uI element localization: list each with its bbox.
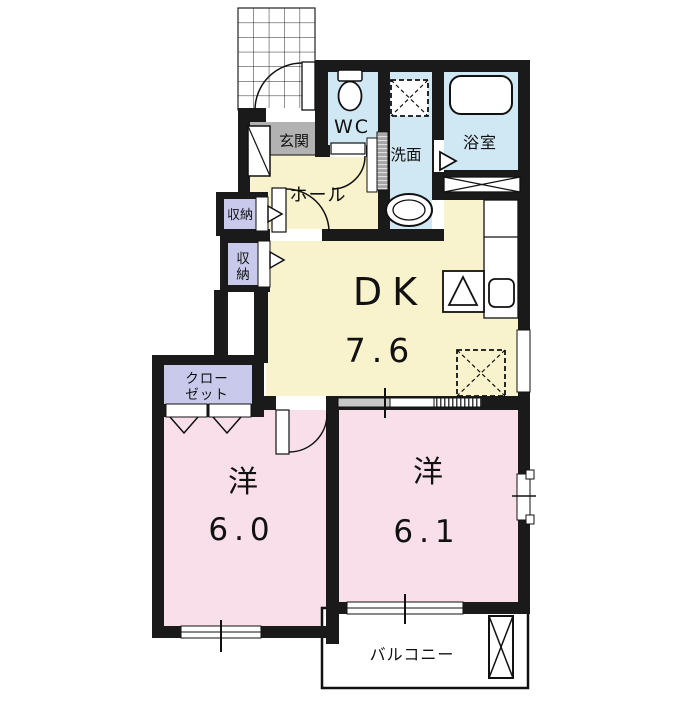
balcony-hatch bbox=[489, 616, 513, 678]
bedroom-left-label: 洋 bbox=[228, 465, 258, 500]
storage-lower-label-1: 収 bbox=[236, 251, 250, 267]
storage-lower-door bbox=[258, 241, 270, 287]
storage-upper-label: 収納 bbox=[227, 208, 253, 223]
wall-dk-left bbox=[254, 284, 268, 363]
toilet-icon bbox=[338, 70, 362, 111]
washroom-sliding-door bbox=[367, 132, 388, 192]
closet-door-2 bbox=[209, 404, 251, 417]
entrance-door-leaf bbox=[302, 62, 315, 110]
storage-upper-door bbox=[256, 197, 268, 231]
sliding-pane-2 bbox=[390, 398, 434, 407]
bedroom-right-label: 洋 bbox=[413, 455, 443, 490]
bedroom-left-size: 6.0 bbox=[208, 512, 275, 548]
bathtub-icon bbox=[450, 76, 512, 114]
entrance-label: 玄関 bbox=[279, 132, 309, 150]
balcony-label: バルコニー bbox=[370, 645, 455, 664]
stove-icon bbox=[443, 271, 484, 312]
washroom-door-pocket bbox=[367, 138, 377, 192]
sliding-pane-1 bbox=[338, 398, 390, 407]
shoe-cabinet bbox=[248, 126, 270, 176]
bedroom-right-size: 6.1 bbox=[393, 514, 460, 550]
kitchen-sink-icon bbox=[489, 279, 514, 307]
washroom-door-panel bbox=[377, 132, 388, 190]
washroom-label: 洗面 bbox=[390, 146, 421, 164]
closet-door-1 bbox=[166, 404, 207, 417]
dk-size: 7.6 bbox=[345, 331, 415, 370]
washing-machine-space bbox=[391, 80, 428, 116]
dk-floor bbox=[266, 241, 518, 396]
window-kitchen-right bbox=[517, 330, 530, 392]
storage-lower-label-2: 納 bbox=[236, 267, 250, 283]
hall-label: ホール bbox=[290, 185, 347, 206]
wall-wc-left bbox=[315, 60, 328, 157]
sliding-screen-pane bbox=[434, 398, 482, 407]
wc-door-leaf bbox=[331, 143, 365, 154]
floor-plan-page: 玄関 WC 洗面 浴室 ホール 収納 収 納 DK 7.6 クロー ゼット 洋 … bbox=[0, 0, 700, 700]
dk-label: DK bbox=[353, 270, 427, 314]
wc-label: WC bbox=[334, 116, 370, 138]
bathroom-label: 浴室 bbox=[463, 133, 497, 152]
cross-shelf bbox=[444, 177, 520, 192]
closet-label-2: ゼット bbox=[185, 387, 229, 403]
dk-bedroom-left-opening bbox=[276, 396, 326, 410]
closet-label-1: クロー bbox=[185, 371, 229, 387]
wall-left-mid bbox=[214, 290, 228, 357]
washbasin-icon bbox=[386, 194, 432, 226]
floor-plan: 玄関 WC 洗面 浴室 ホール 収納 収 納 DK 7.6 クロー ゼット 洋 … bbox=[0, 0, 700, 700]
dk-bedroom-left-leaf bbox=[276, 410, 289, 454]
bedroom-right-floor bbox=[339, 410, 518, 602]
